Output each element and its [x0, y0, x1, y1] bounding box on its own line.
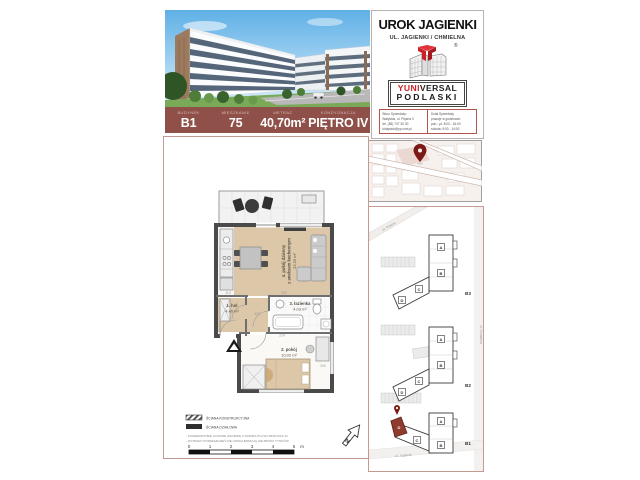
legend-partition-label: ŚCIANA DZIAŁOWA — [206, 425, 238, 430]
spec-floor-value: PIĘTRO IV — [308, 117, 368, 130]
brand-name-box: YUNIVERSAL PODLASKI — [390, 82, 464, 105]
hall-label: 1. hol — [227, 303, 238, 308]
legend-swatch-partition — [186, 424, 202, 429]
living-room-area: 22,25 m² — [292, 252, 297, 268]
scale-tick: 1 — [209, 444, 212, 449]
contact-line: pon.- pt. 8:00 - 16:00 — [431, 122, 473, 126]
spec-building: BUDYNEK B1 — [165, 107, 212, 133]
desk — [316, 337, 329, 361]
spec-banner: BUDYNEK B1 MIESZKANIE 75 METRAŻ 40,70m² … — [165, 107, 370, 133]
washbasin — [276, 300, 284, 308]
desk-chair — [306, 345, 314, 353]
spec-area-label: METRAŻ — [273, 111, 292, 115]
bedroom-area: 10,02 m² — [281, 353, 297, 358]
section-label-a: A — [440, 419, 443, 424]
section-label-c: C — [418, 287, 421, 292]
spec-building-label: BUDYNEK — [177, 111, 199, 115]
spec-building-value: B1 — [181, 117, 197, 130]
section-label-a: A — [440, 245, 443, 250]
section-label-d-highlighted: D — [398, 425, 401, 430]
balcony-box — [302, 195, 316, 203]
contact-line: Biuro Sprzedaży: — [383, 112, 425, 116]
scale-unit: m — [300, 444, 304, 449]
north-arrow-icon: N — [339, 421, 364, 448]
spec-apartment-label: MIESZKANIE — [222, 111, 250, 115]
building-b2-label: B2 — [465, 383, 471, 388]
bedroom-wardrobe — [243, 365, 265, 389]
bathtub — [273, 315, 303, 329]
section-label-d: D — [401, 298, 404, 303]
kitchen-sink — [223, 237, 229, 243]
floor-plan-panel: 4. pokój dzienny z aneksem kuchennym 22,… — [163, 136, 369, 459]
section-label-b: B — [440, 363, 443, 368]
scale-tick: 3 — [251, 444, 254, 449]
kitchen — [220, 229, 233, 290]
section-label-b: B — [440, 271, 443, 276]
page-subtitle: UL. JAGIENKI / CHMIELNA — [390, 35, 466, 41]
dimension: 110 — [225, 291, 231, 295]
scale-bar: 0 1 2 3 4 5 m — [188, 444, 304, 454]
bathroom-area: 4,03 m² — [293, 307, 307, 312]
contact-line: sobota: 9:00 - 14:00 — [431, 127, 473, 131]
dimension: 323 — [254, 312, 260, 316]
section-label-c: C — [416, 438, 419, 443]
section-label-c: C — [418, 379, 421, 384]
bathroom-label: 3. łazienka — [290, 301, 312, 306]
legend-note: - WYMIARY POMIESZCZEŃ NIE UWZGLĘDNIAJĄ G… — [186, 438, 289, 443]
balcony-table — [245, 199, 259, 213]
scale-tick: 5 — [293, 444, 296, 449]
brand-logo: ® — [406, 45, 450, 79]
flyer-page: BUDYNEK B1 MIESZKANIE 75 METRAŻ 40,70m² … — [0, 0, 640, 480]
dimension: 340 — [320, 364, 326, 368]
scale-tick: 0 — [188, 444, 191, 449]
bedroom-label: 2. pokój — [281, 347, 297, 352]
balcony — [219, 191, 324, 225]
floor-plan: 4. pokój dzienny z aneksem kuchennym 22,… — [164, 137, 368, 456]
contact-line: bialystok@yp.com.pl — [383, 127, 425, 131]
site-plan: ul. Piękna ul. Chmielna ul. Jagienki A B — [369, 207, 483, 471]
page-title: UROK JAGIENKI — [378, 17, 476, 32]
spec-floor-label: KONDYGNACJA — [321, 111, 356, 115]
section-label-a: A — [440, 337, 443, 342]
scale-tick: 2 — [230, 444, 233, 449]
spec-floor: KONDYGNACJA PIĘTRO IV — [306, 107, 370, 133]
brand-name-line2: PODLASKI — [396, 93, 458, 102]
section-label-d: D — [401, 390, 404, 395]
contact-column-hours: Dział Sprzedaży pracuje w godzinach: pon… — [428, 110, 476, 133]
contact-line: tel. (85) 747 30 30 — [383, 122, 425, 126]
registered-mark: ® — [454, 43, 458, 49]
plan-legend: ŚCIANA KONSTRUKCYJNA ŚCIANA DZIAŁOWA - P… — [186, 415, 289, 443]
spec-apartment: MIESZKANIE 75 — [212, 107, 259, 133]
contact-line: Dział Sprzedaży — [431, 112, 473, 116]
legend-swatch-structural — [186, 415, 202, 420]
contact-line: pracuje w godzinach: — [431, 117, 473, 121]
kitchen-fridge — [220, 278, 233, 290]
building-b1-label: B1 — [465, 441, 471, 446]
site-plan-panel: ul. Piękna ul. Chmielna ul. Jagienki A B — [368, 206, 484, 472]
brand-logo-icon — [406, 45, 450, 79]
street-chmielna-label: ul. Chmielna — [479, 325, 483, 344]
building-rendering — [165, 10, 370, 107]
contact-column-office: Biuro Sprzedaży: Białystok, ul. Piękna 3… — [380, 110, 429, 133]
tv-cabinet — [284, 228, 306, 232]
living-room-label: z aneksem kuchennym — [287, 238, 292, 284]
dimension: 214 — [279, 334, 285, 338]
washer — [321, 319, 331, 329]
spec-area: METRAŻ 40,70m² — [259, 107, 306, 133]
spec-apartment-value: 75 — [229, 117, 243, 130]
spec-area-value: 40,70m² — [260, 117, 305, 130]
building-b3-label: B3 — [465, 291, 471, 296]
living-room-label: 4. pokój dzienny — [281, 244, 286, 277]
location-map — [368, 140, 482, 202]
scale-tick: 4 — [272, 444, 275, 449]
developer-info-panel: UROK JAGIENKI UL. JAGIENKI / CHMIELNA — [371, 10, 484, 139]
legend-structural-label: ŚCIANA KONSTRUKCYJNA — [206, 416, 250, 421]
hall-area: 4,40 m² — [225, 309, 239, 314]
legend-note: - POWIERZCHNIE LICZONE ZGODNIE Z NORMĄ P… — [186, 434, 288, 438]
dimension: 352 — [281, 291, 287, 295]
toilet — [313, 304, 321, 314]
contact-box: Biuro Sprzedaży: Białystok, ul. Piękna 3… — [379, 109, 477, 134]
section-label-b: B — [440, 443, 443, 448]
contact-line: Białystok, ul. Piękna 3 — [383, 117, 425, 121]
